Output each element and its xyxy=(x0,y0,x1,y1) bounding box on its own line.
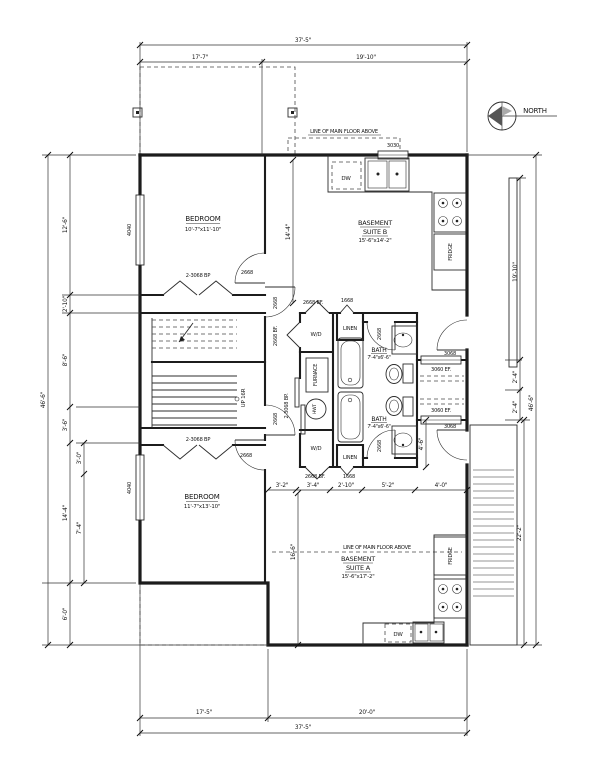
door-entry-suite-b xyxy=(437,320,467,350)
dim-hall-e: 4'-0" xyxy=(435,483,448,489)
dim-top-right: 19'-10" xyxy=(356,55,376,61)
bath-top-label: BATH xyxy=(371,347,386,354)
toilet-bottom xyxy=(386,397,413,417)
dw-bottom-label: DW xyxy=(393,632,403,638)
suite-a-label-2: SUITE A xyxy=(346,564,371,572)
linen-bottom-label: LINEN xyxy=(343,455,357,461)
bedroom-top-label: BEDROOM xyxy=(185,215,220,223)
suite-b-size: 15'-6"x14'-2" xyxy=(359,238,392,244)
dim-bottom-overall: 37'-5" xyxy=(295,725,312,731)
dim-left-b: 2'-10" xyxy=(63,295,69,312)
dim-left-e: 3'-0" xyxy=(77,451,83,464)
dim-top-left: 17'-7" xyxy=(192,55,209,61)
window-3060-bottom xyxy=(421,416,461,424)
door-suite-a xyxy=(265,405,295,435)
bathtub-top xyxy=(338,338,363,388)
north-label: NORTH xyxy=(523,107,547,115)
bifold-closet-top-label: 2-3068 BP xyxy=(186,273,211,279)
stove-bottom xyxy=(434,579,466,618)
door-entry-b-label: 3068 xyxy=(444,351,456,357)
door-linen-top xyxy=(340,305,354,313)
bedroom-bottom-label: BEDROOM xyxy=(184,493,219,501)
window-4040-bottom-label: 4040 xyxy=(127,482,133,494)
windows xyxy=(136,151,461,520)
dim-right-c: 2'-4" xyxy=(513,400,519,413)
door-linen-bottom-label: 1668 xyxy=(343,474,355,480)
door-bath-top-label: 2668 xyxy=(377,328,383,340)
door-entry-a-label: 3068 xyxy=(444,424,456,430)
dim-bottom-right: 20'-0" xyxy=(359,710,376,716)
dim-hall-b: 3'-4" xyxy=(307,483,320,489)
bath-bottom-label: BATH xyxy=(371,416,386,423)
laundry-top-label: W/D xyxy=(311,332,322,338)
toilet-top xyxy=(386,364,413,384)
bath-bottom-size: 7'-4"x6'-6" xyxy=(367,424,390,430)
dim-bath-v: 4'-6" xyxy=(419,437,425,450)
dim-left-c: 8'-6" xyxy=(63,353,69,366)
window-3060-top-label: 3060 EF. xyxy=(431,367,452,373)
bifold-wd-bottom-label: 2668 BF. xyxy=(305,474,326,480)
window-4040-bottom xyxy=(136,455,144,520)
fridge-top-label: FRIDGE xyxy=(448,243,454,261)
vanity-sink-top xyxy=(392,326,417,354)
vanity-sink-bottom xyxy=(392,426,417,454)
furnace-label: FURNACE xyxy=(313,364,319,386)
bathtub-bottom xyxy=(338,392,363,442)
door-linen-top-label: 1668 xyxy=(341,298,353,304)
bypass-hall xyxy=(295,378,305,434)
note-floor-above-bottom: LINE OF MAIN FLOOR ABOVE xyxy=(343,545,411,551)
linen-top-label: LINEN xyxy=(343,326,357,332)
dim-left-d: 3'-6" xyxy=(63,418,69,431)
bifold-wd-top-label: 2668 BF. xyxy=(303,300,324,306)
sink-bottom xyxy=(413,622,444,643)
floorplan-sheet: NORTH LINE OF MAIN FLOOR ABOVE LINE OF M… xyxy=(0,0,600,771)
bifold-hall xyxy=(287,322,300,348)
dw-top-label: DW xyxy=(341,176,351,182)
door-suite-b-label: 2668 xyxy=(273,297,279,309)
window-3060-bottom-label: 3060 EF. xyxy=(431,408,452,414)
dim-right-b: 2'-4" xyxy=(513,370,519,383)
dim-suite-a-v: 16'-6" xyxy=(291,543,297,560)
dim-left-a: 12'-6" xyxy=(63,216,69,233)
dim-right-stair: 22'-2" xyxy=(517,524,523,541)
door-bath-bottom-label: 2668 xyxy=(377,440,383,452)
hwt-label: HWT xyxy=(312,404,318,414)
dim-mid-hall-v: 14'-4" xyxy=(286,223,292,240)
bath-top-size: 7'-4"x6'-6" xyxy=(367,355,390,361)
door-entry-suite-a xyxy=(437,430,467,460)
dim-hall-d: 5'-2" xyxy=(382,483,395,489)
exterior-stairs xyxy=(470,178,517,645)
door-suite-a-label: 2668 xyxy=(273,413,279,425)
sink-top xyxy=(365,158,409,191)
suite-b-label-1: BASEMENT xyxy=(358,219,392,227)
interior-stairs xyxy=(152,318,265,428)
door-bedroom-top xyxy=(235,253,265,283)
bifold-closet-bottom xyxy=(163,445,233,459)
dim-left-h: 6'-0" xyxy=(63,607,69,620)
fridge-bottom-label: FRIDGE xyxy=(448,547,454,565)
window-4040-top xyxy=(136,195,144,265)
bedroom-top-size: 10'-7"x11'-10" xyxy=(185,227,221,233)
dim-left-f: 14'-4" xyxy=(63,504,69,521)
note-floor-above-top: LINE OF MAIN FLOOR ABOVE xyxy=(310,129,378,135)
north-arrow: NORTH xyxy=(488,102,557,130)
dim-right-a: 19'-10" xyxy=(513,262,519,282)
laundry-bottom-label: W/D xyxy=(311,446,322,452)
window-4040-top-label: 4040 xyxy=(127,224,133,236)
door-suite-b xyxy=(265,287,295,317)
door-bedroom-bottom-label: 2668 xyxy=(240,453,252,459)
dim-hall-a: 3'-2" xyxy=(276,483,289,489)
door-bedroom-top-label: 2668 xyxy=(241,270,253,276)
bifold-closet-top xyxy=(163,281,233,295)
suite-a-size: 15'-6"x17'-2" xyxy=(342,574,375,580)
dim-right-overall: 46'-6" xyxy=(529,394,535,411)
suite-a-label-1: BASEMENT xyxy=(341,555,375,563)
suite-b-label-2: SUITE B xyxy=(363,228,387,236)
dim-bottom-left: 17'-5" xyxy=(196,710,213,716)
window-3060-top xyxy=(421,356,461,364)
dim-left-overall: 46'-6" xyxy=(41,391,47,408)
bedroom-bottom-size: 11'-7"x13'-10" xyxy=(184,504,220,510)
dim-left-g: 7'-4" xyxy=(77,521,83,534)
stove-top xyxy=(434,193,466,232)
bifold-hall-label: 2668 BF. xyxy=(273,325,279,346)
dim-hall-c: 2'-10" xyxy=(338,483,355,489)
stairs-label: UP 16R xyxy=(241,388,247,407)
bypass-hall-label: 2-3068 BP. xyxy=(284,393,290,419)
dim-top-overall: 37'-5" xyxy=(295,38,312,44)
bifold-closet-bottom-label: 2-3068 BP xyxy=(186,437,211,443)
text-labels: LINE OF MAIN FLOOR ABOVE LINE OF MAIN FL… xyxy=(127,129,456,638)
window-3030-label: 3030 xyxy=(387,143,399,149)
floor-plan-canvas: NORTH LINE OF MAIN FLOOR ABOVE LINE OF M… xyxy=(0,0,600,771)
